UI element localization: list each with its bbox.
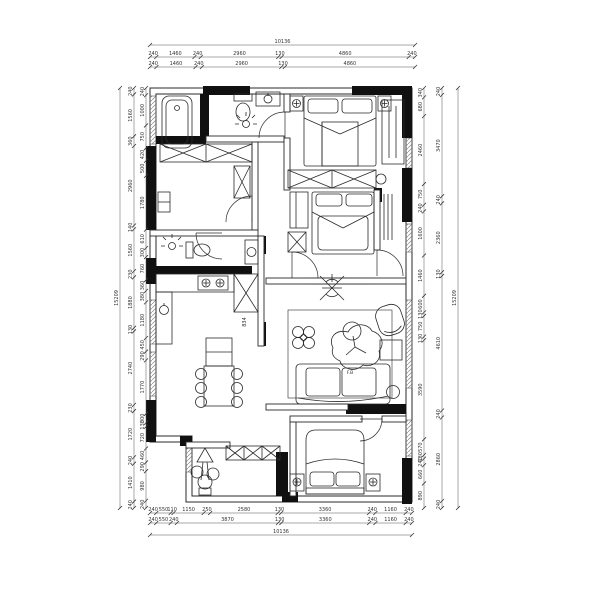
floor-plan-canvas: 834 F.B 10136240146024029601304860240240… (0, 0, 600, 600)
dimension-label: 340 (418, 88, 424, 98)
dimension-label: 240 (367, 507, 377, 513)
dimension-label: 3360 (319, 507, 332, 513)
dimension-label: 240 (148, 51, 158, 57)
dimension-label: 290 (140, 351, 146, 361)
dimension-layer: 1013624014602402960130486024024014602402… (0, 0, 600, 600)
dimension-label: 680 (418, 102, 424, 112)
dimension-label: 420 (140, 150, 146, 160)
dimension-label: 750 (140, 132, 146, 142)
dimension-label: 240 (148, 507, 158, 513)
dimension-label: 1410 (128, 476, 134, 489)
dimension-label: 240 (368, 517, 378, 523)
dimension-label: 250 (202, 507, 212, 513)
dimension-label: 460 (140, 451, 146, 461)
dimension-label: 1460 (169, 51, 182, 57)
dimension-label: 240 (148, 517, 158, 523)
dimension-label: 1720 (128, 428, 134, 441)
dimension-label: 3870 (221, 517, 234, 523)
dimension-label: 2960 (233, 51, 246, 57)
dimension-label: 240 (194, 61, 204, 67)
dimension-label: 110 (167, 507, 177, 513)
dimension-label: 1880 (128, 296, 134, 309)
dimension-label: 2960 (128, 179, 134, 192)
dimension-label: 15209 (452, 290, 458, 306)
dimension-label: 360 (128, 136, 134, 146)
dimension-label: 130 (275, 51, 285, 57)
dimension-label: 570 (418, 442, 424, 452)
dimension-label: 240 (418, 203, 424, 213)
dimension-label: 600 (418, 299, 424, 309)
dimension-label: 240 (436, 409, 442, 419)
dimension-label: 240 (140, 87, 146, 97)
dimension-label: 240 (404, 507, 414, 513)
dimension-label: 750 (418, 322, 424, 332)
dimension-label: 2580 (238, 507, 251, 513)
dimension-label: 240 (418, 457, 424, 467)
dimension-label: 1560 (128, 244, 134, 257)
dimension-label: 1180 (140, 314, 146, 327)
dimension-label: 450 (140, 340, 146, 350)
dimension-label: 2460 (418, 144, 424, 157)
dimension-label: 720 (140, 433, 146, 443)
dimension-label: 140 (128, 223, 134, 233)
dimension-label: 1160 (384, 507, 397, 513)
dimension-label: 1770 (140, 381, 146, 394)
dimension-label: 130 (275, 507, 285, 513)
dimension-label: 550 (159, 517, 169, 523)
dimension-label: 660 (418, 470, 424, 480)
dimension-label: 760 (140, 264, 146, 274)
dimension-label: 130 (140, 420, 146, 430)
dimension-label: 750 (418, 190, 424, 200)
dimension-label: 290 (140, 462, 146, 472)
dimension-label: 240 (193, 51, 203, 57)
dimension-label: 300 (140, 248, 146, 258)
dimension-label: 360 (140, 281, 146, 291)
dimension-label: 1000 (140, 104, 146, 117)
dimension-label: 3470 (436, 139, 442, 152)
dimension-label: 1780 (140, 196, 146, 209)
dimension-label: 4610 (436, 337, 442, 350)
dimension-label: 4860 (339, 51, 352, 57)
dimension-label: 240 (148, 61, 158, 67)
dimension-label: 1160 (384, 517, 397, 523)
dimension-label: 2960 (235, 61, 248, 67)
dimension-label: 1460 (170, 61, 183, 67)
dimension-label: 230 (128, 403, 134, 413)
dimension-label: 240 (436, 500, 442, 510)
dimension-label: 240 (404, 517, 414, 523)
dimension-label: 130 (278, 61, 288, 67)
dimension-label: 240 (128, 500, 134, 510)
dimension-label: 2360 (436, 231, 442, 244)
dimension-label: 240 (407, 51, 417, 57)
dimension-label: 130 (128, 325, 134, 335)
dimension-label: 4860 (344, 61, 357, 67)
dimension-label: 240 (128, 86, 134, 96)
dimension-label: 3590 (418, 383, 424, 396)
dimension-label: 1460 (418, 269, 424, 282)
dimension-label: 3360 (319, 517, 332, 523)
dimension-label: 240 (436, 195, 442, 205)
dimension-label: 980 (140, 481, 146, 491)
dimension-label: 10136 (273, 529, 289, 535)
dimension-label: 2860 (436, 453, 442, 466)
dimension-label: 500 (140, 164, 146, 174)
dimension-label: 610 (140, 234, 146, 244)
dimension-label: 380 (140, 292, 146, 302)
dimension-label: 2740 (128, 362, 134, 375)
dimension-label: 130 (436, 269, 442, 279)
dimension-label: 10136 (275, 39, 291, 45)
dimension-label: 240 (169, 517, 179, 523)
dimension-label: 1560 (128, 109, 134, 122)
dimension-label: 230 (128, 269, 134, 279)
dimension-label: 240 (128, 456, 134, 466)
dimension-label: 240 (140, 500, 146, 510)
dimension-label: 240 (436, 87, 442, 97)
dimension-label: 1150 (182, 507, 195, 513)
dimension-label: 130 (275, 517, 285, 523)
dimension-label: 1600 (418, 227, 424, 240)
dimension-label: 15209 (114, 290, 120, 306)
dimension-label: 130 (418, 334, 424, 344)
dimension-label: 890 (418, 491, 424, 501)
dimension-label: 130 (418, 309, 424, 319)
